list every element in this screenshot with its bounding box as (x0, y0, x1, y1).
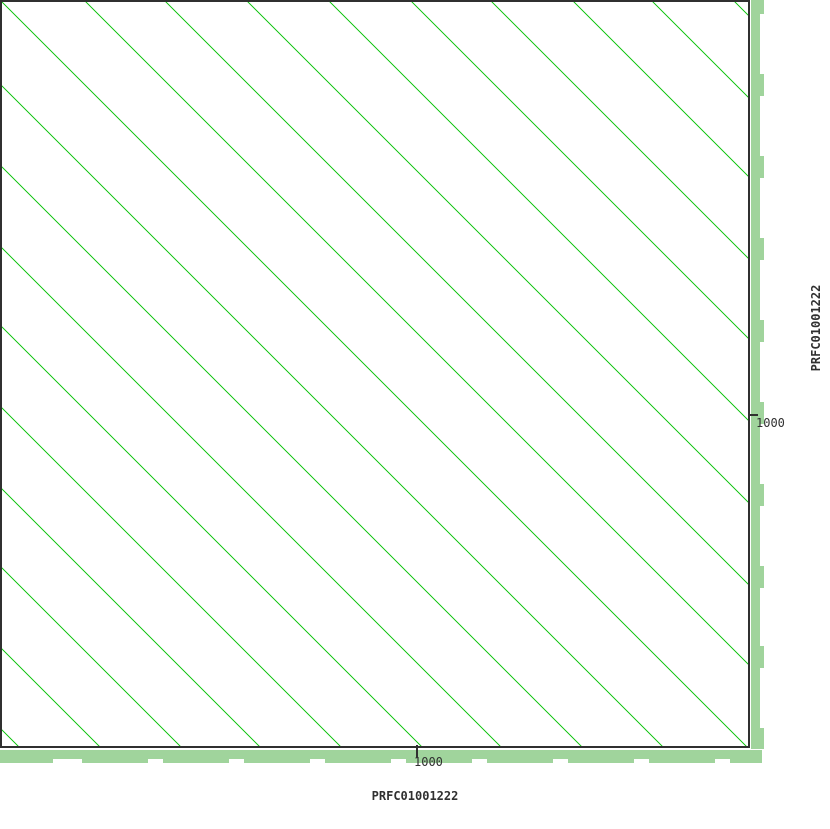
alignment-diagonal (410, 0, 749, 339)
alignment-diagonal (0, 566, 182, 748)
coverage-band-right-bump (751, 320, 764, 342)
dotplot-canvas (0, 0, 830, 829)
alignment-diagonal (651, 0, 749, 98)
coverage-band-bottom-bump (325, 750, 391, 763)
alignment-diagonal (0, 325, 423, 748)
alignment-diagonal (0, 0, 748, 748)
coverage-band-right-bump (751, 156, 764, 178)
alignment-diagonal (733, 0, 749, 16)
x-axis-title: PRFC01001222 (0, 789, 830, 803)
alignment-diagonal (0, 487, 261, 748)
alignment-diagonal (246, 0, 749, 503)
alignment-diagonals (0, 0, 749, 748)
alignment-diagonal (0, 728, 20, 748)
alignment-diagonal (0, 246, 502, 748)
dotplot-figure: 1000 1000 PRFC01001222 PRFC01001222 (0, 0, 830, 829)
alignment-diagonal (0, 165, 583, 748)
coverage-band-bottom-bump (82, 750, 148, 763)
coverage-band-right-bump (751, 74, 764, 96)
x-axis-tick-label: 1000 (414, 756, 443, 769)
alignment-diagonal (84, 0, 749, 665)
y-axis-tick-label: 1000 (756, 417, 785, 430)
coverage-band-bottom-bump (730, 750, 762, 763)
coverage-band-bottom-bump (487, 750, 553, 763)
coverage-band-right-bump (751, 238, 764, 260)
y-axis-title: PRFC01001222 (809, 285, 823, 372)
coverage-band-right-bump (751, 0, 764, 14)
coverage-band-bottom-bump (244, 750, 310, 763)
alignment-diagonal (328, 0, 749, 421)
alignment-diagonal (0, 647, 101, 748)
alignment-diagonal (0, 84, 664, 748)
coverage-band-right-bump (751, 728, 764, 749)
coverage-band-right-bump (751, 566, 764, 588)
coverage-band-bottom-bump (163, 750, 229, 763)
coverage-band-right-bump (751, 646, 764, 668)
alignment-diagonal (490, 0, 749, 259)
coverage-band-right-bump (751, 484, 764, 506)
alignment-diagonal (572, 0, 749, 177)
coverage-band-bottom-bump (0, 750, 53, 763)
coverage-band-bottom-bump (649, 750, 715, 763)
coverage-band-right (751, 0, 760, 749)
alignment-diagonal (0, 406, 342, 748)
coverage-band-bottom-bump (568, 750, 634, 763)
